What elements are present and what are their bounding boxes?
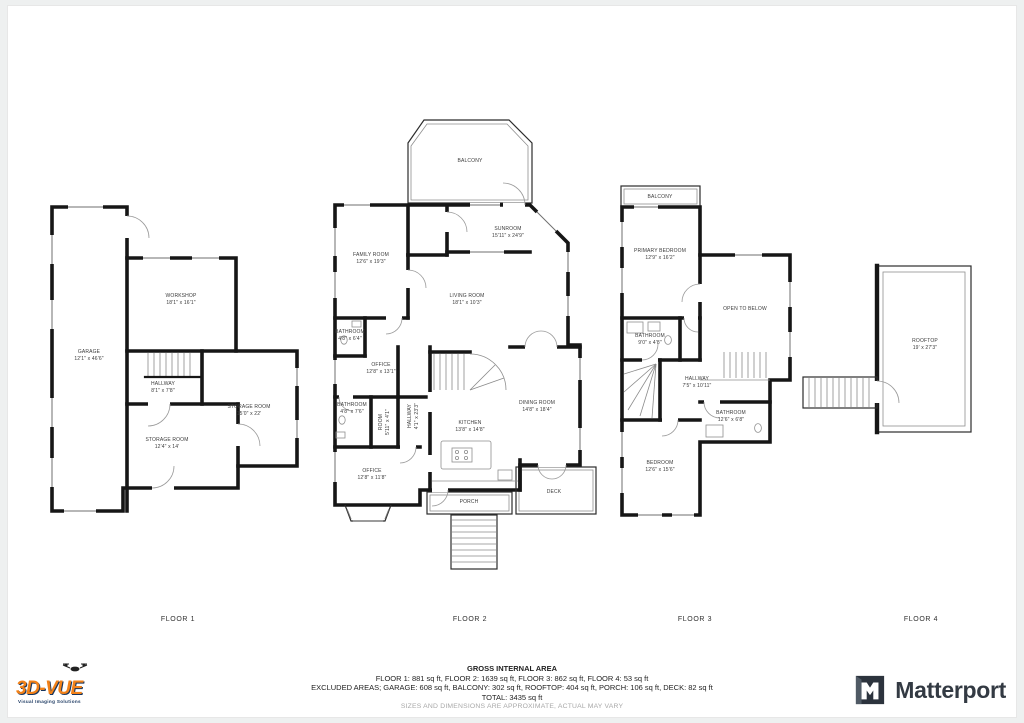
floorplan-drawing: GARAGE 12'1" x 46'6" WORKSHOP 18'1" x 16… xyxy=(0,0,1024,723)
room-label: BATHROOM xyxy=(716,410,746,416)
room-label: STORAGE ROOM xyxy=(145,437,188,443)
room-label: LIVING ROOM xyxy=(450,293,485,299)
room-label: BATHROOM xyxy=(335,329,365,335)
room-label: OFFICE xyxy=(362,468,382,474)
room-dims: 8'1" x 7'8" xyxy=(151,388,175,394)
vendor-tagline: Visual Imaging Solutions xyxy=(18,699,136,704)
summary-title: GROSS INTERNAL AREA xyxy=(0,664,1024,674)
room-dims: 15'0" x 22' xyxy=(237,411,262,417)
floor2-bay-window xyxy=(345,505,391,521)
room-label: BATHROOM xyxy=(635,333,665,339)
room-label: FAMILY ROOM xyxy=(353,252,389,258)
room-label: ROOM xyxy=(378,414,384,430)
floor1-plan: GARAGE 12'1" x 46'6" WORKSHOP 18'1" x 16… xyxy=(52,207,297,511)
floor1-room-labels: GARAGE 12'1" x 46'6" WORKSHOP 18'1" x 16… xyxy=(74,293,270,450)
floor2-caption: FLOOR 2 xyxy=(453,616,487,623)
room-dims: 4'8" x 6'4" xyxy=(338,336,362,342)
room-dims: 12'8" x 13'1" xyxy=(366,369,395,375)
room-dims: 9'0" x 4'8" xyxy=(638,340,662,346)
room-label: BALCONY xyxy=(648,194,673,200)
room-dims: 12'9" x 16'2" xyxy=(645,255,674,261)
floor3-plan: BALCONY PRIMARY BEDROOM 12'9" x 16'2" OP… xyxy=(621,186,790,515)
floor2-stairs xyxy=(434,354,506,390)
room-label: GARAGE xyxy=(78,349,101,355)
room-dims: 4'1" x 23'3" xyxy=(414,403,420,430)
floor4-plan: ROOFTOP 19' x 27'3" xyxy=(803,266,971,432)
room-label: PRIMARY BEDROOM xyxy=(634,248,686,254)
room-label: OFFICE xyxy=(371,362,391,368)
room-label: BATHROOM xyxy=(337,402,367,408)
room-label: OPEN TO BELOW xyxy=(723,306,767,312)
room-label: SUNROOM xyxy=(494,226,521,232)
room-dims: 12'4" x 14' xyxy=(155,444,180,450)
room-label: HALLWAY xyxy=(685,376,710,382)
room-dims: 7'5" x 10'11" xyxy=(682,383,711,389)
room-dims: 18'1" x 16'1" xyxy=(166,300,195,306)
room-dims: 5'11" x 4'1" xyxy=(385,409,391,435)
room-label: KITCHEN xyxy=(459,420,482,426)
floor3-caption: FLOOR 3 xyxy=(678,616,712,623)
room-label: BEDROOM xyxy=(647,460,674,466)
room-label: DINING ROOM xyxy=(519,400,555,406)
matterport-logo-text: Matterport xyxy=(895,677,1006,704)
floor4-caption: FLOOR 4 xyxy=(904,616,938,623)
room-dims: 18'1" x 10'3" xyxy=(452,300,481,306)
room-dims: 4'8" x 7'6" xyxy=(340,409,364,415)
room-dims: 12'6" x 6'8" xyxy=(718,417,745,423)
room-label: PORCH xyxy=(460,499,479,505)
floor2-exterior-stairs xyxy=(451,515,497,569)
room-dims: 12'6" x 15'6" xyxy=(645,467,674,473)
room-label: HALLWAY xyxy=(151,381,176,387)
floor2-kitchen-fixtures xyxy=(432,441,518,481)
room-label: HALLWAY xyxy=(407,403,413,428)
room-dims: 14'8" x 18'4" xyxy=(522,407,551,413)
room-label: DECK xyxy=(547,489,562,495)
drone-icon xyxy=(62,662,88,674)
room-label: WORKSHOP xyxy=(166,293,197,299)
floor4-stairs xyxy=(803,377,877,408)
floor-captions: FLOOR 1 FLOOR 2 FLOOR 3 FLOOR 4 xyxy=(161,616,938,623)
matterport-logo: Matterport xyxy=(854,674,1006,706)
room-label: ROOFTOP xyxy=(912,338,938,344)
matterport-logo-icon xyxy=(854,674,886,706)
room-dims: 15'11" x 24'9" xyxy=(492,233,524,239)
vendor-logo: 3D-VUE Visual Imaging Solutions xyxy=(16,661,136,704)
floor1-stairs xyxy=(145,353,200,377)
floor2-doors xyxy=(339,183,566,506)
floor1-caption: FLOOR 1 xyxy=(161,616,195,623)
room-dims: 12'6" x 19'3" xyxy=(356,259,385,265)
room-dims: 12'1" x 46'6" xyxy=(74,356,103,362)
room-label: BALCONY xyxy=(458,158,483,164)
floor4-room-labels: ROOFTOP 19' x 27'3" xyxy=(912,338,938,351)
room-dims: 19' x 27'3" xyxy=(913,345,938,351)
vendor-logo-text: 3D-VUE xyxy=(16,679,136,698)
room-dims: 13'8" x 14'8" xyxy=(455,427,484,433)
room-dims: 12'8" x 11'8" xyxy=(357,475,386,481)
room-label: STORAGE ROOM xyxy=(227,404,270,410)
floor2-plan: BALCONY FAMILY ROOM 12'6" x 19'3" SUNROO… xyxy=(335,120,596,569)
floor4-doors xyxy=(877,381,899,403)
